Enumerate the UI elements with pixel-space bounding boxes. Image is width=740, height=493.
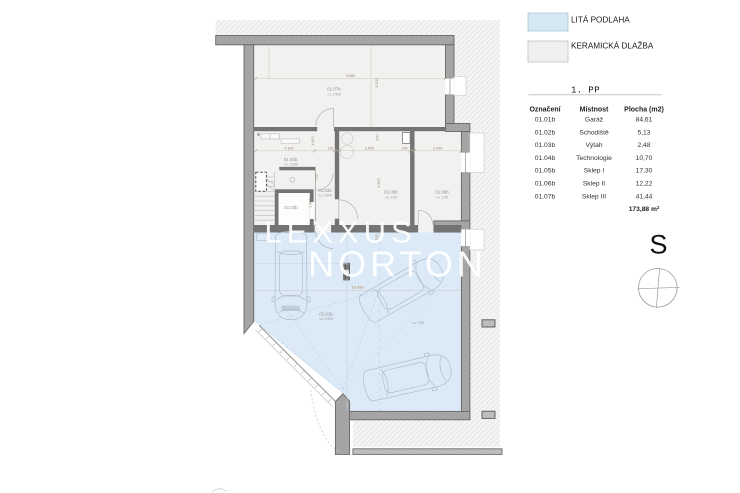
svg-text:9.650: 9.650	[346, 74, 355, 78]
svg-text:NORTON: NORTON	[308, 244, 487, 285]
svg-text:01.06b: 01.06b	[535, 181, 556, 188]
svg-text:01.03b: 01.03b	[535, 142, 556, 149]
svg-text:4.100: 4.100	[284, 147, 293, 151]
svg-text:10,70: 10,70	[636, 155, 653, 162]
svg-text:2,48: 2,48	[637, 142, 650, 149]
svg-text:Označení: Označení	[529, 107, 561, 114]
svg-text:2.800: 2.800	[309, 198, 313, 207]
svg-text:01.07b: 01.07b	[535, 193, 556, 200]
svg-text:01.04b: 01.04b	[535, 155, 556, 162]
svg-text:01.02b: 01.02b	[318, 188, 332, 193]
svg-text:01.02b: 01.02b	[535, 129, 556, 136]
svg-text:Technologie: Technologie	[576, 155, 612, 162]
svg-text:4.150: 4.150	[375, 78, 379, 87]
svg-text:01.06b: 01.06b	[435, 190, 449, 195]
svg-text:Sklep III: Sklep III	[582, 193, 606, 200]
svg-text:01.07b: 01.07b	[327, 87, 341, 92]
svg-text:3.500: 3.500	[365, 147, 374, 151]
svg-text:2.430: 2.430	[433, 147, 442, 151]
svg-text:v.v. 2.999: v.v. 2.999	[319, 317, 333, 321]
svg-text:12,22: 12,22	[636, 181, 653, 188]
svg-text:150: 150	[401, 147, 407, 151]
svg-text:Sklep I: Sklep I	[584, 168, 605, 175]
svg-text:Místnost: Místnost	[580, 107, 609, 114]
svg-text:10.450: 10.450	[351, 285, 364, 290]
svg-text:v.v. 2.99: v.v. 2.99	[412, 321, 424, 325]
svg-text:KERAMICKÁ DLAŽBA: KERAMICKÁ DLAŽBA	[571, 41, 654, 51]
svg-text:v.v. 2.999: v.v. 2.999	[284, 163, 298, 167]
svg-text:Sklep II: Sklep II	[583, 181, 605, 188]
svg-text:01.01b: 01.01b	[319, 312, 333, 317]
svg-text:01.03b: 01.03b	[284, 205, 298, 210]
svg-text:Garáž: Garáž	[585, 117, 604, 124]
svg-text:1.600: 1.600	[311, 136, 315, 145]
svg-text:1. PP: 1. PP	[571, 86, 600, 96]
svg-text:41,44: 41,44	[636, 193, 653, 200]
svg-text:5,13: 5,13	[637, 129, 650, 136]
svg-text:4.800: 4.800	[377, 178, 381, 187]
svg-text:S: S	[649, 230, 667, 260]
svg-text:01.01b: 01.01b	[535, 117, 556, 124]
svg-text:01.05b: 01.05b	[535, 168, 556, 175]
svg-text:173,88 m2: 173,88 m2	[629, 205, 660, 213]
svg-text:v.v. 2.999: v.v. 2.999	[318, 194, 332, 198]
svg-text:v.v. 2.999: v.v. 2.999	[327, 93, 341, 97]
svg-text:150: 150	[315, 174, 319, 180]
svg-text:Plocha (m2): Plocha (m2)	[624, 107, 664, 114]
svg-text:LITÁ PODLAHA: LITÁ PODLAHA	[571, 15, 630, 25]
svg-text:Výtah: Výtah	[585, 142, 602, 149]
svg-text:200: 200	[376, 134, 380, 140]
svg-text:v.v. 2.99: v.v. 2.99	[385, 196, 397, 200]
svg-text:01.04b: 01.04b	[284, 157, 298, 162]
svg-text:Schodiště: Schodiště	[579, 129, 609, 136]
svg-text:v.v. 2.99: v.v. 2.99	[436, 196, 448, 200]
svg-text:84,61: 84,61	[636, 117, 653, 124]
svg-text:150: 150	[327, 147, 333, 151]
svg-text:17,30: 17,30	[636, 168, 653, 175]
svg-text:01.05b: 01.05b	[384, 190, 398, 195]
